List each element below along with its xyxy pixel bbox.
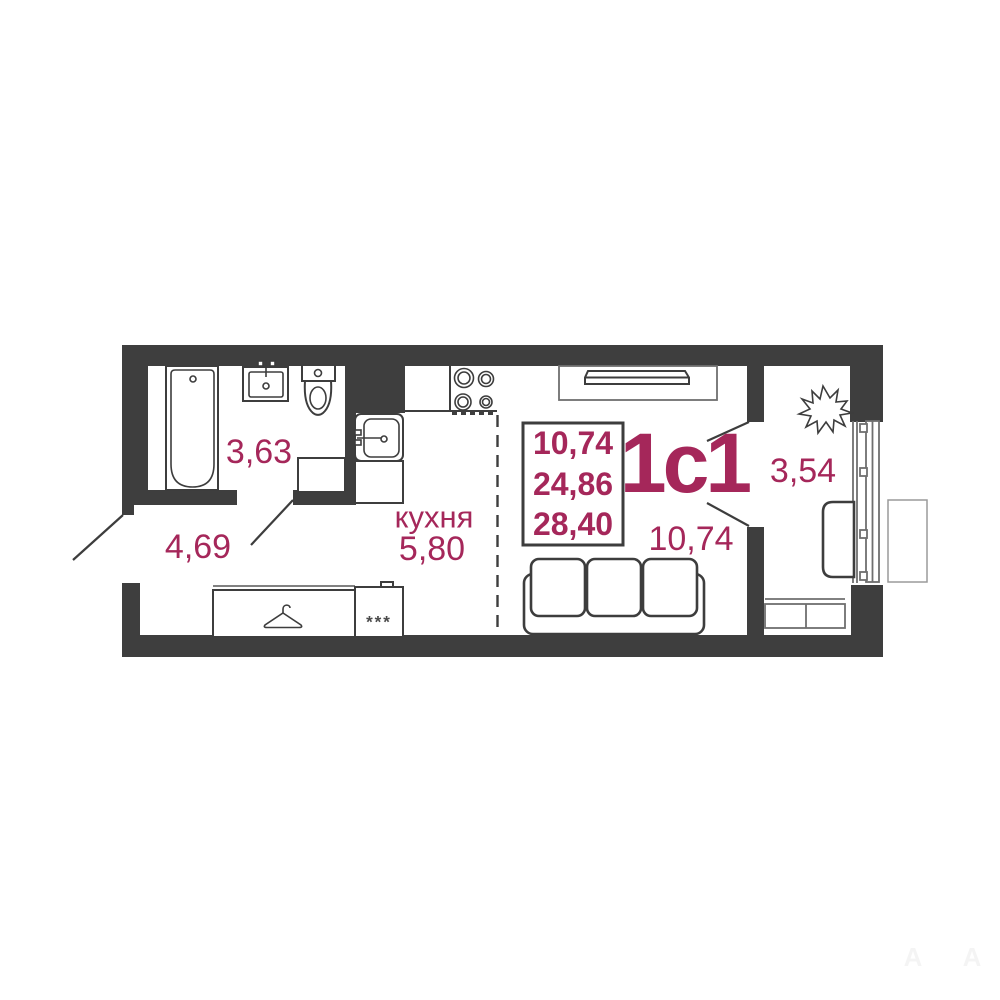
- wall-left-lower: [122, 583, 140, 637]
- wall-right-bottom-corner: [851, 585, 883, 657]
- balcony-cabinet-icon: [765, 599, 845, 628]
- wall-top: [122, 345, 883, 366]
- kitchen-counter: [355, 461, 403, 503]
- wall-vent-block: [345, 345, 405, 413]
- kitchen-area-label: 5,80: [399, 532, 465, 566]
- floor-plan-drawing: [0, 0, 1000, 1000]
- wardrobe-icon: [213, 586, 355, 637]
- stove-icon: [405, 366, 497, 415]
- outdoor-table-icon: [888, 500, 927, 582]
- entry-door-swing: [73, 515, 123, 560]
- bath-sink-icon: [243, 360, 288, 401]
- wall-entry-jamb: [122, 505, 134, 515]
- tv-icon: [585, 371, 689, 384]
- appliance-stars-marker: ***: [366, 614, 392, 631]
- plant-icon: [799, 386, 852, 433]
- kitchen-name-label: кухня: [395, 502, 474, 533]
- washing-machine-icon: [298, 458, 345, 492]
- watermark: А: [904, 944, 923, 970]
- balcony-area-label: 3,54: [770, 454, 836, 488]
- wall-balcony-partition-lower: [747, 527, 764, 637]
- kitchen-sink-icon: [355, 414, 403, 461]
- summary-living-area: 10,74: [533, 427, 613, 459]
- watermark: А: [963, 944, 982, 970]
- floor-plan: 3,63 4,69 кухня 5,80 10,74 3,54 10,74 24…: [0, 0, 1000, 1000]
- unit-type-label: 1с1: [620, 421, 748, 505]
- bathroom-door-swing: [251, 500, 293, 545]
- wall-balcony-partition-upper: [747, 345, 764, 422]
- summary-total-area: 24,86: [533, 468, 613, 500]
- living-room-area-label: 10,74: [648, 522, 733, 556]
- bathtub-icon: [166, 366, 218, 490]
- sofa-icon: [524, 559, 704, 634]
- wall-left-upper: [122, 345, 148, 505]
- armchair-icon: [823, 502, 854, 577]
- hallway-area-label: 4,69: [165, 530, 231, 564]
- wall-bathroom-bottom-left: [122, 490, 237, 505]
- toilet-icon: [302, 365, 335, 415]
- bathroom-area-label: 3,63: [226, 435, 292, 469]
- wall-bottom: [122, 635, 883, 657]
- summary-area-with-balcony: 28,40: [533, 508, 613, 540]
- balcony-window-icon: [853, 421, 879, 583]
- wall-right-top-corner: [850, 345, 883, 422]
